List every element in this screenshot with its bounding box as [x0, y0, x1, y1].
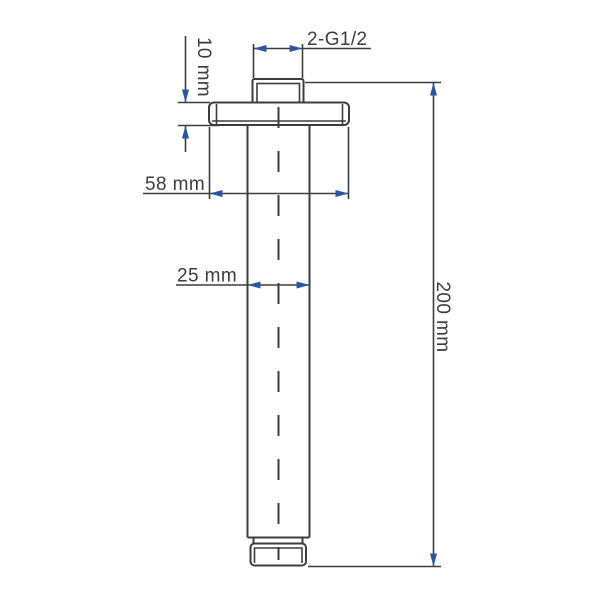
arrowhead-left	[248, 282, 261, 289]
arrowhead-left	[210, 190, 223, 197]
arrowhead-down	[182, 90, 189, 103]
dimension-flange-diameter: 58 mm	[143, 127, 349, 199]
dimension-pipe-diameter: 25 mm	[176, 266, 310, 289]
arrowhead-right	[290, 45, 303, 52]
dimension-thread: 2-G1/2	[254, 29, 372, 78]
dimension-label-thread: 2-G1/2	[307, 29, 368, 50]
dimension-label-pipe-diameter: 25 mm	[177, 266, 237, 287]
dimension-label-overall-length: 200 mm	[432, 281, 453, 352]
arrowhead-down	[430, 554, 437, 567]
dimension-flange-thickness: 10 mm	[178, 36, 219, 152]
technical-drawing-canvas: 2-G1/2 10 mm 58 mm 25 mm	[0, 0, 600, 600]
dimension-label-flange-diameter: 58 mm	[145, 174, 205, 195]
arrowhead-right	[297, 282, 310, 289]
arrowhead-up	[182, 126, 189, 139]
arrowhead-right	[336, 190, 349, 197]
dimension-label-flange-thickness: 10 mm	[193, 37, 214, 97]
top-thread-connector	[253, 79, 304, 105]
shower-arm-part	[209, 79, 349, 566]
dimension-overall-length: 200 mm	[305, 83, 453, 567]
arrowhead-up	[430, 83, 437, 96]
arrowhead-left	[254, 45, 267, 52]
shower-arm-dimension-drawing: 2-G1/2 10 mm 58 mm 25 mm	[0, 0, 600, 600]
